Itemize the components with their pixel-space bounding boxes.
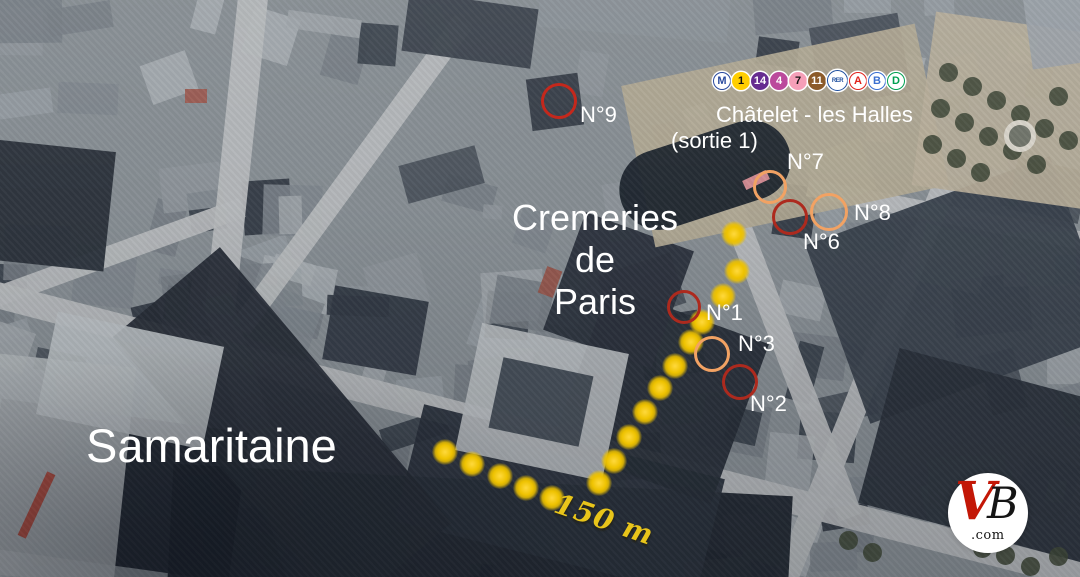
path-dot — [586, 470, 612, 496]
transit-badge-rer: RER — [827, 70, 848, 91]
transit-badge-rer-b: B — [868, 72, 886, 90]
shop-name-line2: de — [440, 239, 750, 281]
marker-label-n8: N°8 — [854, 200, 891, 226]
marker-label-n7: N°7 — [787, 149, 824, 175]
transit-badge-line-4: 4 — [770, 72, 788, 90]
transit-badge-line-11: 11 — [808, 72, 826, 90]
department-store-name: Samaritaine — [86, 418, 337, 473]
shop-name: Cremeries de Paris — [440, 197, 750, 323]
path-dot — [487, 463, 513, 489]
transit-badges: M1144711RERABD — [713, 70, 905, 91]
station-name: Châtelet - les Halles — [716, 102, 913, 128]
transit-badge-line-14: 14 — [751, 72, 769, 90]
path-dot — [647, 375, 673, 401]
transit-badge-metro: M — [713, 72, 731, 90]
vb-logo-com: .com — [971, 528, 1005, 543]
marker-label-n9: N°9 — [580, 102, 617, 128]
path-dot — [513, 475, 539, 501]
shop-name-line1: Cremeries — [440, 197, 750, 239]
path-dot — [616, 424, 642, 450]
marker-label-n6: N°6 — [803, 229, 840, 255]
path-dot — [632, 399, 658, 425]
transit-badge-rer-d: D — [887, 72, 905, 90]
marker-circle-n8 — [810, 193, 848, 231]
vb-logo[interactable]: V B .com — [948, 473, 1028, 553]
map-screenshot: N°9N°7N°8N°6N°1N°3N°2 M1144711RERABD Châ… — [0, 0, 1080, 577]
marker-circle-n3 — [694, 336, 730, 372]
path-dot — [432, 439, 458, 465]
path-dot — [459, 451, 485, 477]
marker-circle-n7 — [753, 170, 787, 204]
transit-badge-line-7: 7 — [789, 72, 807, 90]
marker-label-n3: N°3 — [738, 331, 775, 357]
station-exit: (sortie 1) — [671, 128, 758, 154]
vb-logo-b: B — [987, 479, 1019, 529]
transit-badge-rer-a: A — [849, 72, 867, 90]
shop-name-line3: Paris — [440, 281, 750, 323]
path-dot — [601, 448, 627, 474]
marker-circle-n9 — [541, 83, 577, 119]
path-dot — [662, 353, 688, 379]
transit-badge-line-1: 1 — [732, 72, 750, 90]
marker-label-n2: N°2 — [750, 391, 787, 417]
